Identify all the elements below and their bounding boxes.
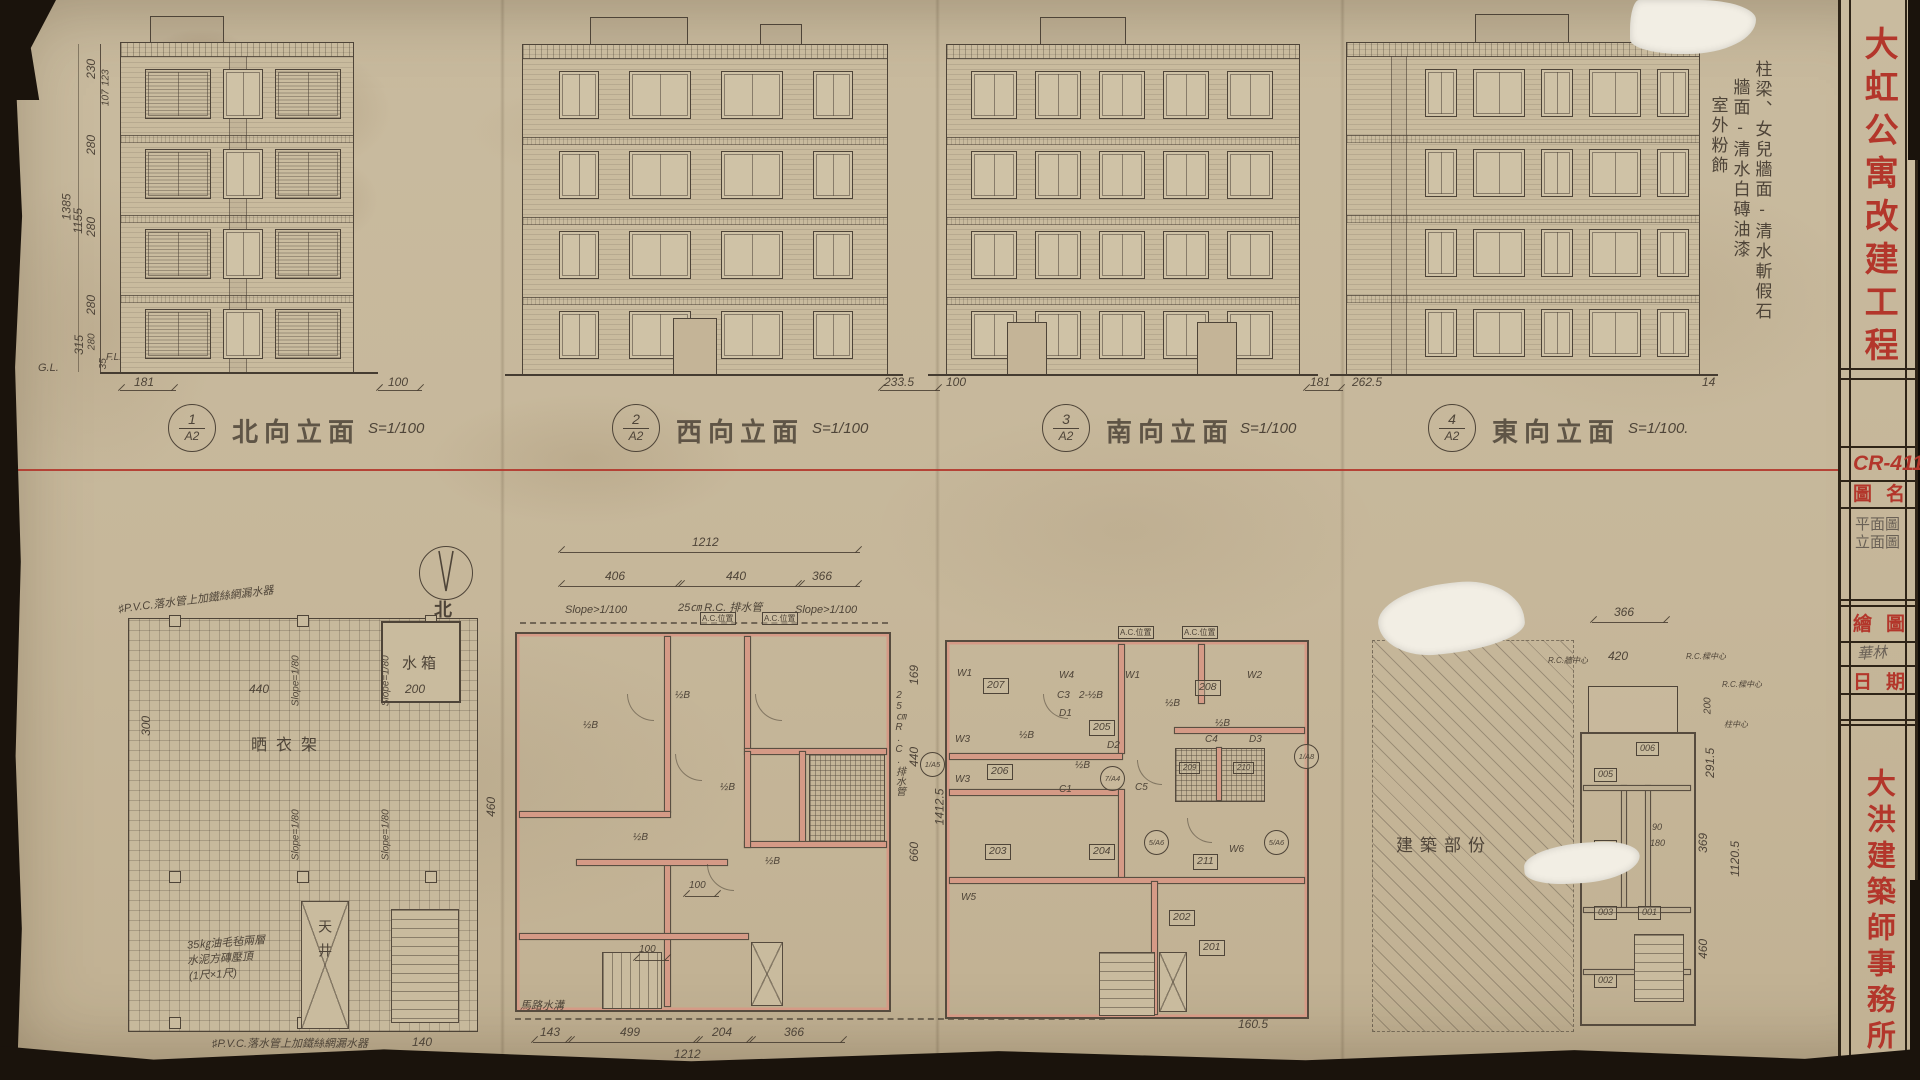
- planD-dim-460: 460: [1697, 939, 1711, 959]
- label-2halfb: 2-½B: [1079, 690, 1103, 702]
- planC-halfb-2: ½B: [1165, 698, 1180, 710]
- roof-dim-440: 440: [249, 683, 269, 697]
- north-compass-icon: [419, 546, 473, 600]
- window: [275, 309, 341, 359]
- window: [1163, 151, 1209, 199]
- window: [1035, 151, 1081, 199]
- window: [1657, 149, 1689, 197]
- elev3-door-right: [1197, 322, 1237, 375]
- planC-wall: [1119, 790, 1124, 878]
- room-209: 209: [1179, 762, 1200, 774]
- planB-bdim4-line: [751, 1042, 845, 1043]
- column-marker: [169, 615, 181, 627]
- window: [223, 149, 263, 199]
- roof-felt-note-1: 35㎏油毛毡兩層: [187, 934, 266, 952]
- window: [1227, 231, 1273, 279]
- elev1-window-grid: [145, 69, 341, 359]
- clothes-rack-label: 晒衣架: [251, 737, 326, 755]
- dim-far-right-14: 14: [1702, 376, 1715, 390]
- planB-wall: [520, 812, 670, 817]
- exterior-finish-note-col3: 室外粉飾: [1708, 96, 1728, 216]
- roof-felt-note-3: (1尺×1尺): [189, 967, 238, 983]
- planB-total-dimline: [560, 552, 860, 553]
- dim-280d: 280: [87, 333, 99, 350]
- label-w1b: W1: [1125, 670, 1140, 682]
- window: [1227, 71, 1273, 119]
- room-003: 003: [1594, 906, 1617, 920]
- window: [1589, 149, 1641, 197]
- planC-wall: [950, 878, 1304, 883]
- window: [813, 311, 853, 359]
- column-marker: [297, 615, 309, 627]
- window: [813, 231, 853, 279]
- grid-bubble-5A6a: 5/A6: [1144, 830, 1169, 855]
- elev1-ref-num: 1: [179, 411, 205, 429]
- title-block-date-row: [1841, 695, 1915, 721]
- drawing-name-line1: 平面圖: [1855, 516, 1900, 533]
- elev4-scale: S=1/100.: [1628, 420, 1688, 437]
- window: [1589, 309, 1641, 357]
- drawing-number: CR-411: [1853, 452, 1920, 476]
- planB-slope-left: Slope>1/100: [565, 604, 627, 617]
- door-swing-arc: [1187, 818, 1212, 843]
- planB-rdim-660: 660: [908, 842, 922, 862]
- elev1-ground-line: [100, 372, 378, 374]
- floor-plan: ½B ½B ½B ½B ½B 100 100: [515, 632, 891, 1012]
- elev4-title: 東向立面: [1492, 412, 1620, 449]
- planB-bathroom: [809, 754, 885, 842]
- window: [629, 71, 691, 119]
- planD-dim-291: 291.5: [1704, 748, 1718, 778]
- label-w6: W6: [1229, 844, 1244, 856]
- planC-wall: [950, 754, 1122, 759]
- dimline-e1-left: [120, 390, 176, 391]
- elev4-stair-strip: [1391, 56, 1407, 375]
- elev4-penthouse: [1475, 14, 1569, 44]
- door-swing-arc: [755, 694, 782, 721]
- drawing-sheet: 230 123 107 280 280 280 315 280 35 1385 …: [0, 0, 1920, 1080]
- window: [1541, 69, 1573, 117]
- label-w5: W5: [961, 892, 976, 904]
- window: [559, 311, 599, 359]
- column-marker: [297, 871, 309, 883]
- room-203: 203: [985, 844, 1011, 860]
- window: [145, 309, 211, 359]
- elev2-title: 西向立面: [676, 412, 804, 449]
- elev3-ref-sheet: A2: [1059, 429, 1074, 445]
- project-title: 大虹公寓改建工程: [1858, 26, 1897, 374]
- label-w3a: W3: [955, 734, 970, 746]
- window: [1425, 309, 1457, 357]
- room-211: 211: [1193, 854, 1218, 870]
- elev4-window-grid: [1425, 69, 1689, 357]
- elev1-title: 北向立面: [232, 412, 360, 449]
- room-006: 006: [1636, 742, 1659, 756]
- room-204: 204: [1089, 844, 1115, 860]
- planB-dim-1212: 1212: [692, 536, 719, 550]
- dim-280b: 280: [85, 217, 99, 237]
- window: [1541, 309, 1573, 357]
- planB-bdim-143: 143: [540, 1026, 560, 1040]
- label-w3b: W3: [955, 774, 970, 786]
- window: [223, 309, 263, 359]
- room-205: 205: [1089, 720, 1115, 736]
- room-201: 201: [1199, 940, 1225, 956]
- dim-230: 230: [85, 59, 99, 79]
- label-c5: C5: [1135, 782, 1148, 794]
- elev1-parapet: [121, 43, 353, 57]
- dimline-e3-left: [880, 390, 940, 391]
- window: [559, 231, 599, 279]
- label-w2: W2: [1247, 670, 1262, 682]
- planB-seg3-dimline: [800, 586, 860, 587]
- planD-wall: [1584, 786, 1690, 790]
- room-005: 005: [1594, 768, 1617, 782]
- planC-wall: [950, 790, 1122, 795]
- elev3-ref-bubble: 3 A2: [1042, 404, 1090, 452]
- title-block-double-rule-3: [1841, 724, 1915, 726]
- planC-ac-label-1: A.C.位置: [1118, 626, 1154, 639]
- room-202: 202: [1169, 910, 1195, 926]
- window: [971, 231, 1017, 279]
- roof-dim-300: 300: [140, 716, 154, 736]
- roof-slope-label-4: Slope=1/80: [381, 809, 393, 860]
- roof-slope-label-2: Slope=1/80: [381, 655, 393, 706]
- elev4-ref-sheet: A2: [1445, 429, 1460, 445]
- window: [1425, 229, 1457, 277]
- window: [559, 71, 599, 119]
- title-block-spacer-row: [1841, 380, 1915, 448]
- planB-wall: [577, 860, 727, 865]
- planD-dim-366: 366: [1614, 606, 1634, 620]
- window: [223, 229, 263, 279]
- planC-wall: [1119, 645, 1124, 753]
- planB-wall: [520, 934, 748, 939]
- planB-wall: [665, 637, 670, 812]
- planB-ac-label-1: A.C.位置: [700, 612, 736, 625]
- window: [1657, 69, 1689, 117]
- planB-dim-100b: 100: [639, 944, 656, 956]
- door-swing-arc: [627, 694, 654, 721]
- column-marker: [425, 871, 437, 883]
- elev2-parapet: [523, 45, 887, 59]
- planB-rdim-169: 169: [908, 665, 922, 685]
- dim-107: 107: [101, 89, 113, 106]
- window: [1473, 69, 1525, 117]
- elev2-ground-line: [505, 374, 903, 376]
- window: [721, 71, 783, 119]
- date-label: 日期: [1853, 672, 1919, 694]
- elev2-window-grid: [559, 71, 853, 359]
- window: [1035, 231, 1081, 279]
- planC-dim-160: 160.5: [1238, 1018, 1268, 1032]
- planD-beam-center-note-2: R.C.樑中心: [1722, 680, 1762, 689]
- elev3-door-left: [1007, 322, 1047, 375]
- planB-bdim2-line: [570, 1042, 698, 1043]
- column-marker: [169, 1017, 181, 1029]
- label-c3: C3: [1057, 690, 1070, 702]
- dim-280c: 280: [85, 295, 99, 315]
- planB-light-well: [751, 942, 783, 1006]
- room-207: 207: [983, 678, 1009, 694]
- label-w4: W4: [1059, 670, 1074, 682]
- paper-crease: [935, 0, 940, 1080]
- planC-light-well: [1159, 952, 1187, 1012]
- planB-ac-label-2: A.C.位置: [762, 612, 798, 625]
- window: [1473, 309, 1525, 357]
- drafter-label: 繪圖: [1853, 614, 1919, 636]
- planD-dim-369: 369: [1697, 833, 1711, 853]
- planB-slope-right: Slope>1/100: [795, 604, 857, 617]
- window: [721, 231, 783, 279]
- room-208: 208: [1195, 680, 1221, 696]
- roof-slope-label-1: Slope=1/80: [291, 655, 303, 706]
- room-210: 210: [1233, 762, 1254, 774]
- window: [813, 151, 853, 199]
- window: [721, 151, 783, 199]
- window: [223, 69, 263, 119]
- planB-right-drain-note: 25㎝R.C.排水管: [893, 690, 905, 796]
- planB-dimline-100a: [685, 896, 719, 897]
- elev1-ref-bubble: 1 A2: [168, 404, 216, 452]
- red-divider-line: [18, 469, 1846, 471]
- window: [1657, 229, 1689, 277]
- planC-wall: [1175, 728, 1304, 733]
- roof-plan: 水箱 天井 晒衣架 Slope=1/80 Slope=1/80 Slope=1/…: [128, 618, 478, 1032]
- window: [1473, 229, 1525, 277]
- door-swing-arc: [675, 754, 702, 781]
- unit-plan: 207 208 205 206 203 204 211 209 210 202 …: [945, 640, 1309, 1019]
- planD-dim-90: 90: [1652, 822, 1662, 832]
- planD-stair: [1634, 934, 1684, 1002]
- elev2-penthouse-small: [760, 24, 802, 46]
- window: [1541, 229, 1573, 277]
- planB-bdim-204: 204: [712, 1026, 732, 1040]
- roof-dim-140: 140: [412, 1036, 432, 1050]
- floor-level-label: F.L.: [106, 352, 122, 364]
- dimline-e4-left: [1305, 390, 1343, 391]
- building-portion-label: 建築部份: [1396, 836, 1492, 856]
- planC-stair: [1099, 952, 1155, 1016]
- elev3-window-grid: [971, 71, 1273, 359]
- elev2-scale: S=1/100: [812, 420, 868, 437]
- label-d3: D3: [1249, 734, 1262, 746]
- window: [721, 311, 783, 359]
- elev3-scale: S=1/100: [1240, 420, 1296, 437]
- exterior-finish-note-col1: 柱梁、女兒牆面-清水斬假石: [1752, 60, 1772, 360]
- elev4-ref-num: 4: [1439, 411, 1465, 429]
- roof-dim-460: 460: [485, 797, 499, 817]
- planB-wall: [800, 752, 805, 844]
- dimline-e1-right: [378, 390, 422, 391]
- window: [1099, 151, 1145, 199]
- dim-e4-181: 181: [1310, 376, 1330, 390]
- window: [1541, 149, 1573, 197]
- window: [275, 69, 341, 119]
- window: [629, 231, 691, 279]
- compass-needle: [420, 547, 472, 599]
- planD-dim-200: 200: [1703, 697, 1715, 714]
- roof-slope-label-3: Slope=1/80: [291, 809, 303, 860]
- window: [145, 69, 211, 119]
- planB-dim-440: 440: [726, 570, 746, 584]
- planB-halfb-3: ½B: [720, 782, 735, 794]
- dim-1155: 1155: [72, 208, 86, 234]
- dim-e4-262: 262.5: [1352, 376, 1382, 390]
- window: [1425, 69, 1457, 117]
- elev1-ref-sheet: A2: [185, 429, 200, 445]
- title-block: 大虹公寓改建工程 CR-411 圖名 平面圖 立面圖 繪圖 華林 日期 大洪建築…: [1838, 0, 1918, 1062]
- planD-beam-center-note-1: R.C.樑中心: [1686, 652, 1726, 661]
- planD-porch: [1588, 686, 1678, 734]
- planD-wall-center-note: R.C.牆中心: [1548, 656, 1588, 665]
- water-tank-label: 水箱: [402, 652, 440, 673]
- ground-level-label: G.L.: [38, 362, 59, 375]
- roof-felt-note-2: 水泥方磚壓頂: [187, 951, 254, 968]
- label-c4: C4: [1205, 734, 1218, 746]
- dim-123: 123: [101, 69, 113, 86]
- room-206: 206: [987, 764, 1013, 780]
- dim-315: 315: [73, 335, 87, 355]
- planB-halfb-1: ½B: [583, 720, 598, 732]
- roof-dim-200: 200: [405, 683, 425, 697]
- elev2-west-elevation-drawing: [522, 44, 888, 376]
- window: [1589, 229, 1641, 277]
- planB-bdim-366: 366: [784, 1026, 804, 1040]
- planB-dim-100a: 100: [689, 880, 706, 892]
- planC-bath-divider: [1217, 748, 1221, 800]
- column-marker: [169, 871, 181, 883]
- planB-wall: [745, 752, 750, 847]
- planB-halfb-5: ½B: [765, 856, 780, 868]
- elev2-penthouse: [590, 17, 688, 46]
- elev3-penthouse: [1040, 17, 1126, 46]
- elev2-entrance-door: [673, 318, 717, 375]
- grid-bubble-5A6b: 5/A6: [1264, 830, 1289, 855]
- elev4-ref-bubble: 4 A2: [1428, 404, 1476, 452]
- label-c1: C1: [1059, 784, 1072, 796]
- room-002: 002: [1594, 974, 1617, 988]
- grid-bubble-7A4: 7/A4: [1100, 766, 1125, 791]
- window: [1035, 71, 1081, 119]
- office-name: 大洪建築師事務所: [1861, 768, 1894, 1054]
- planB-wall: [745, 842, 886, 847]
- window: [1099, 71, 1145, 119]
- dim-e3-100: 100: [946, 376, 966, 390]
- planB-dim-366: 366: [812, 570, 832, 584]
- elev4-east-elevation-drawing: [1346, 42, 1700, 376]
- paper-crease: [1340, 0, 1345, 1080]
- planD-col-center-note: 柱中心: [1724, 720, 1748, 729]
- dim-e1-100: 100: [388, 376, 408, 390]
- window: [145, 149, 211, 199]
- window: [1473, 149, 1525, 197]
- light-well-label: 天井: [317, 919, 333, 967]
- drawing-name-label: 圖名: [1853, 484, 1919, 506]
- planD-dim-420: 420: [1608, 650, 1628, 664]
- planD-dim-180: 180: [1650, 838, 1665, 848]
- door-swing-arc: [707, 864, 734, 891]
- window: [629, 151, 691, 199]
- planD-dim-1120: 1120.5: [1729, 841, 1743, 877]
- dim-e1-181: 181: [134, 376, 154, 390]
- room-001: 001: [1638, 906, 1661, 920]
- elev1-scale: S=1/100: [368, 420, 424, 437]
- window: [1163, 71, 1209, 119]
- dark-edge-top-right: [1908, 0, 1920, 160]
- elev3-south-elevation-drawing: [946, 44, 1300, 376]
- road-gutter-label: 馬路水溝: [520, 1000, 564, 1013]
- window: [1227, 151, 1273, 199]
- dim-280a: 280: [85, 135, 99, 155]
- window: [559, 151, 599, 199]
- planC-halfb-3: ½B: [1215, 718, 1230, 730]
- planB-bdim-499: 499: [620, 1026, 640, 1040]
- planB-dimline-100b: [635, 960, 669, 961]
- planC-halfb-1: ½B: [1019, 730, 1034, 742]
- label-d2: D2: [1107, 740, 1120, 752]
- window: [1589, 69, 1641, 117]
- label-w1a: W1: [957, 668, 972, 680]
- elev3-title: 南向立面: [1106, 412, 1234, 449]
- dark-edge-bottom-right: [1910, 880, 1920, 1080]
- elev2-ref-sheet: A2: [629, 429, 644, 445]
- elev2-ref-num: 2: [623, 411, 649, 429]
- window: [145, 229, 211, 279]
- paper-crease: [500, 0, 505, 1080]
- planB-bdim3-line: [698, 1042, 751, 1043]
- window: [275, 229, 341, 279]
- exterior-finish-note-col2: 牆面-清水白磚油漆: [1730, 78, 1750, 348]
- planB-seg1-dimline: [560, 586, 680, 587]
- planB-seg2-dimline: [680, 586, 800, 587]
- planB-bdim1-line: [533, 1042, 570, 1043]
- window: [971, 71, 1017, 119]
- drawing-name-line2: 立面圖: [1855, 534, 1900, 551]
- planD-dim366-line: [1592, 622, 1668, 623]
- window: [1163, 231, 1209, 279]
- dim-e3-233: 233.5: [884, 376, 914, 390]
- planB-halfb-4: ½B: [633, 832, 648, 844]
- roof-stair: [391, 909, 459, 1023]
- elev4-ground-line: [1330, 374, 1718, 376]
- planB-dim-406: 406: [605, 570, 625, 584]
- window: [813, 71, 853, 119]
- window: [1099, 311, 1145, 359]
- elev2-ref-bubble: 2 A2: [612, 404, 660, 452]
- planB-halfb-2: ½B: [675, 690, 690, 702]
- planB-wall: [745, 637, 750, 749]
- planC-ac-label-2: A.C.位置: [1182, 626, 1218, 639]
- window: [275, 149, 341, 199]
- planB-bdim-1212: 1212: [674, 1048, 701, 1062]
- window: [1099, 231, 1145, 279]
- elev3-ref-num: 3: [1053, 411, 1079, 429]
- grid-bubble-1A5: 1/A5: [920, 752, 945, 777]
- grid-bubble-1A8: 1/A8: [1294, 744, 1319, 769]
- planC-halfb-4: ½B: [1075, 760, 1090, 772]
- label-d1: D1: [1059, 708, 1072, 720]
- elev1-north-elevation-drawing: [120, 42, 354, 374]
- window: [1425, 149, 1457, 197]
- window: [1657, 309, 1689, 357]
- drafter-signature: 華林: [1857, 644, 1888, 663]
- elev3-parapet: [947, 45, 1299, 59]
- elev3-ground-line: [928, 374, 1318, 376]
- roof-drain-note-bottom: ♯P.V.C.落水管上加鐵絲網漏水器: [212, 1038, 368, 1051]
- window: [971, 151, 1017, 199]
